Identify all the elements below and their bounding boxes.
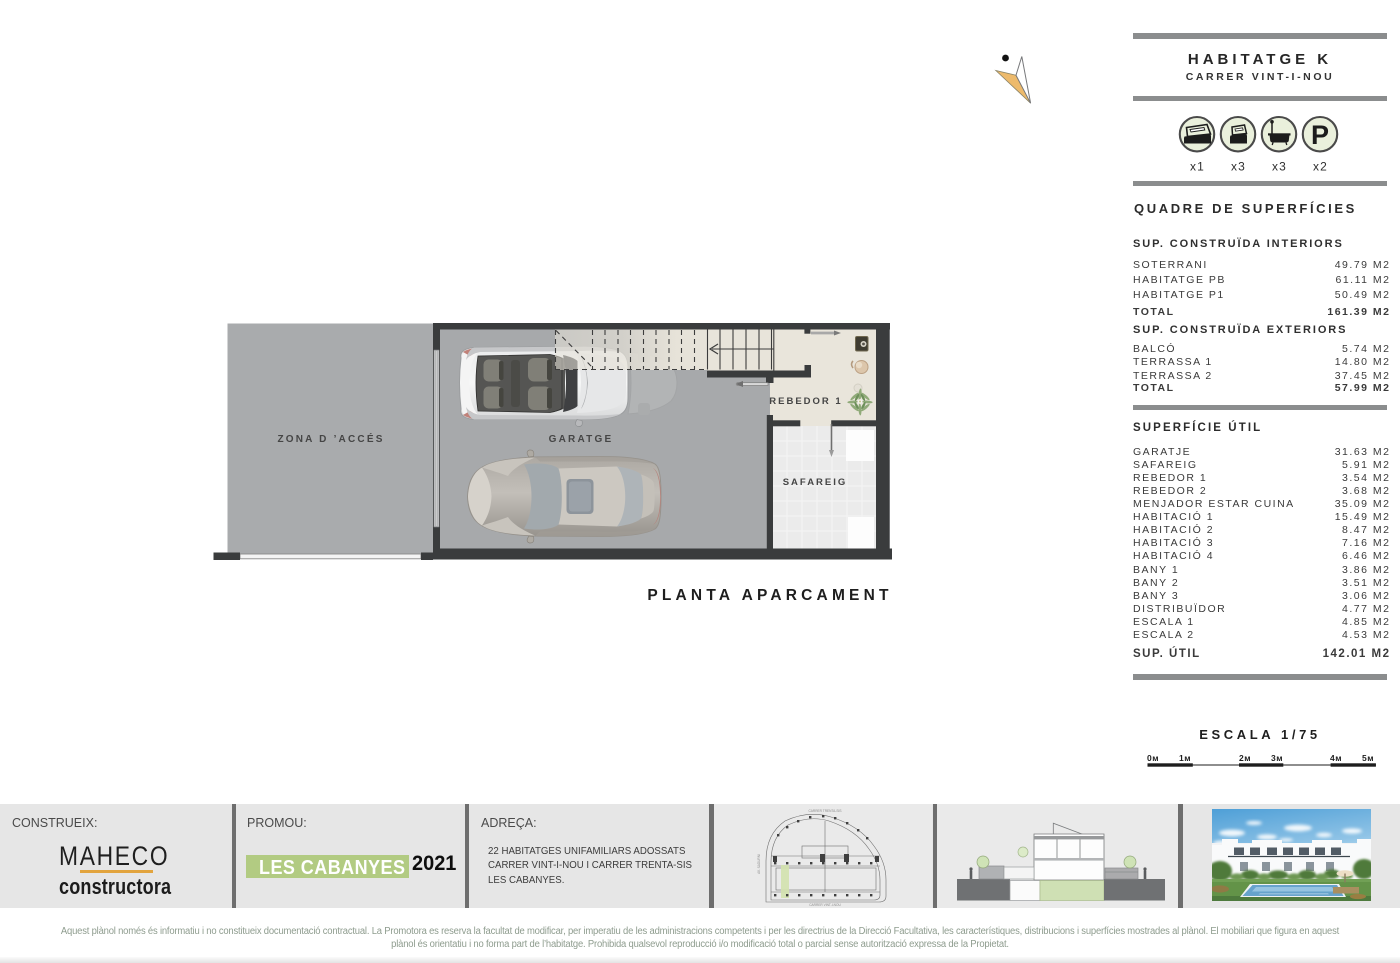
svg-text:AV. SADURNI: AV. SADURNI — [757, 854, 761, 874]
svg-text:P: P — [1311, 120, 1329, 150]
svg-text:x2: x2 — [1313, 160, 1328, 174]
svg-text:GARATGE: GARATGE — [549, 434, 614, 445]
svg-text:5м: 5м — [1362, 753, 1374, 763]
svg-text:x1: x1 — [1190, 160, 1205, 174]
svg-text:4м: 4м — [1330, 753, 1342, 763]
svg-text:3м: 3м — [1271, 753, 1283, 763]
svg-text:x3: x3 — [1231, 160, 1246, 174]
svg-text:0м: 0м — [1147, 753, 1159, 763]
svg-text:SAFAREIG: SAFAREIG — [783, 477, 848, 488]
svg-text:1м: 1м — [1179, 753, 1191, 763]
svg-text:CARRER TRENTA-SIS: CARRER TRENTA-SIS — [809, 809, 842, 813]
svg-text:CARRER VINT-I-NOU: CARRER VINT-I-NOU — [809, 903, 841, 907]
svg-text:PLANTA APARCAMENT: PLANTA APARCAMENT — [647, 587, 892, 604]
svg-text:x3: x3 — [1272, 160, 1287, 174]
svg-text:REBEDOR 1: REBEDOR 1 — [769, 396, 842, 407]
svg-text:2м: 2м — [1239, 753, 1251, 763]
svg-text:ZONA D ’ACCÉS: ZONA D ’ACCÉS — [277, 432, 384, 445]
